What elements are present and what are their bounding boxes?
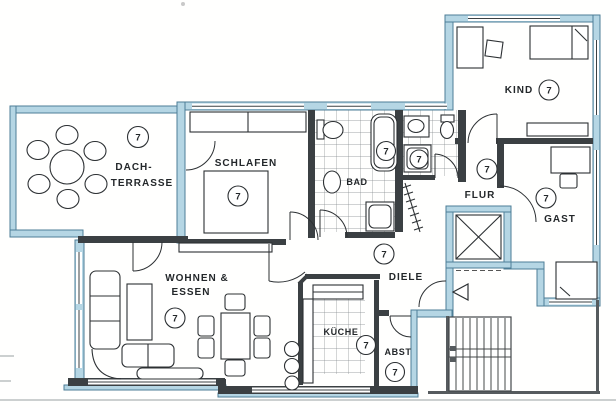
stairs [449,284,511,391]
toilet-tank [441,115,454,122]
label-gast: GAST [544,214,576,225]
stool [285,359,300,374]
unit-marker-kind: 7 [539,80,559,100]
floor-plan-scan: DACH- TERRASSE SCHLAFEN BAD KIND FLUR GA… [0,0,616,408]
abst-north-wall-stub [379,310,389,316]
label-schlafen: SCHLAFEN [215,158,277,169]
stairwell-east-wall [596,300,599,392]
label-diele: DIELE [389,272,423,283]
kind-door [468,114,497,143]
elevator-south-wall [446,262,511,268]
dining-chair [225,294,245,310]
svg-text:7: 7 [383,147,388,158]
bed [530,26,588,59]
kind-west-wall [445,15,453,110]
kind-gast-divider-east [496,138,593,144]
window [468,16,560,21]
svg-text:7: 7 [392,368,397,379]
unit-marker-terrace: 7 [128,127,149,148]
sofa-bench [137,368,203,379]
chair [485,40,503,58]
dining-chair [225,360,245,376]
living-north-west-wall [78,236,188,243]
sofa-corner [92,349,121,379]
sofa [90,271,120,349]
coffee-table [127,284,152,340]
svg-text:7: 7 [135,133,140,144]
label-wohnen-line2: ESSEN [172,287,211,298]
unit-marker-wohnen: 7 [165,308,185,328]
kind-furniture [457,26,588,136]
sideboard [179,243,272,252]
terrace-chair [84,142,106,161]
window [76,310,82,368]
dining-table [221,313,250,359]
stool [285,376,299,390]
abst-door [390,316,411,337]
living-furniture [90,243,300,390]
shower-room-east-wall [458,110,466,182]
window [594,40,599,115]
desk [551,147,590,173]
dining-chair [198,338,214,358]
unit-marker-diele: 7 [374,244,394,264]
dining-chair [198,316,214,336]
terrace-chair [57,190,79,209]
elevator-east-wall [504,206,511,269]
shelf [527,123,588,136]
window [252,388,370,393]
terrace-chair [56,126,78,145]
label-kind: KIND [505,85,533,96]
label-bad: BAD [346,177,367,187]
kitchen-north-wall [305,274,380,279]
unit-marker-abst: 7 [386,363,405,382]
svg-text:7: 7 [484,165,489,176]
elevator-north-wall [446,206,511,212]
window [88,380,216,385]
window [549,300,592,305]
bath-south-wall [345,232,395,238]
label-kueche: KÜCHE [323,327,358,337]
svg-text:7: 7 [546,86,551,97]
unit-marker-bad: 7 [377,142,396,161]
toilet [441,122,454,139]
round-table [50,150,84,184]
unit-marker-schlafen: 7 [228,186,248,206]
shower-room-south-wall [398,175,435,180]
terrace-bottom-wall [10,230,83,237]
window [327,104,371,110]
window [405,104,447,110]
label-abst: ABST [385,347,412,357]
kind-gast-divider-west [455,138,466,144]
sink [324,171,341,193]
dining-chair [254,316,270,336]
unit-marker-flur: 7 [477,159,497,179]
kitchen-corner-angle [299,275,308,284]
unit-marker-wc: 7 [410,150,428,168]
unit-marker-kueche: 7 [357,336,376,355]
flur-gast-divider [497,144,504,188]
apartment-entrance-door [419,281,446,307]
terrace-living-door [133,242,162,271]
terrace-top-wall [10,106,178,113]
label-dach-terrasse-line2: TERRASSE [111,178,173,189]
desk [457,27,483,68]
chair [560,174,577,188]
kitchen-east-wall [374,280,379,393]
terrace-chair [28,175,50,194]
label-flur: FLUR [465,190,496,201]
terrace-bedroom-door [186,141,215,170]
label-wohnen-line1: WOHNEN & [165,273,229,284]
unit-marker-gast: 7 [536,188,556,208]
kitchen-counter [303,299,313,383]
stool [285,342,300,357]
entrance-arrow-icon [453,284,468,300]
toilet [323,122,343,139]
bedroom-west-wall [177,102,185,243]
terrace-chair [27,141,49,160]
label-dach-terrasse-line1: DACH- [115,162,152,173]
floor-plan-drawing: DACH- TERRASSE SCHLAFEN BAD KIND FLUR GA… [0,0,616,408]
terrace-furniture [27,126,107,209]
bed [556,262,597,299]
dining-chair [254,338,270,358]
svg-text:7: 7 [363,341,368,352]
svg-text:7: 7 [235,192,240,203]
window [192,104,304,110]
svg-text:7: 7 [543,194,548,205]
svg-text:7: 7 [416,155,421,166]
terrace-left-wall [10,106,16,237]
svg-text:7: 7 [172,314,177,325]
hall-wardrobe [402,183,423,232]
abst-east-wall [411,310,417,395]
terrace-chair [85,175,107,194]
svg-text:7: 7 [381,250,386,261]
window [594,150,599,245]
window [76,252,82,304]
bedroom-furniture [190,112,306,233]
